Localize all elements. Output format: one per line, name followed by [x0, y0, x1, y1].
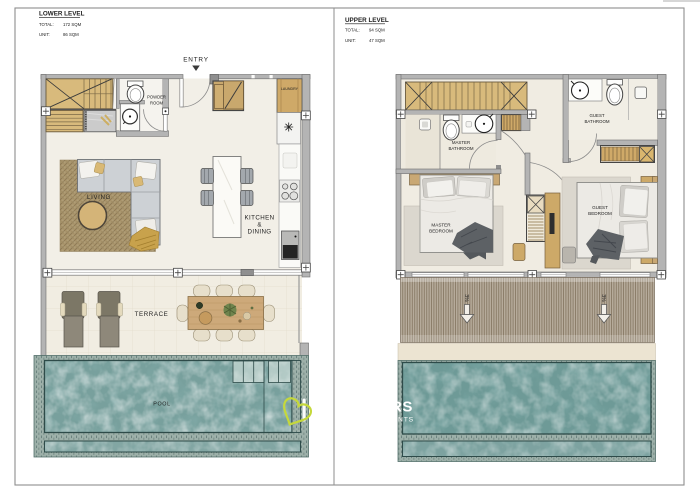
svg-text:LOWER LEVEL: LOWER LEVEL — [39, 10, 85, 17]
svg-text:TOTAL:: TOTAL: — [39, 22, 54, 27]
svg-text:LAUNDRY: LAUNDRY — [281, 87, 299, 91]
svg-text:BATHROOM: BATHROOM — [448, 146, 473, 151]
svg-text:MASTER: MASTER — [452, 140, 470, 145]
svg-text:GUEST: GUEST — [592, 205, 608, 210]
svg-text:POWDER: POWDER — [147, 95, 166, 100]
svg-text:KITCHEN: KITCHEN — [245, 215, 275, 222]
svg-text:ROOM: ROOM — [150, 100, 164, 105]
svg-text:DINING: DINING — [247, 229, 271, 236]
svg-text:86 SQM: 86 SQM — [63, 32, 79, 37]
svg-text:UNIT:: UNIT: — [39, 32, 50, 37]
svg-text:3%: 3% — [600, 294, 606, 302]
svg-text:ENTRY: ENTRY — [183, 57, 209, 64]
svg-text:3%: 3% — [463, 294, 469, 302]
svg-text:NTS: NTS — [398, 417, 414, 424]
svg-text:TERRACE: TERRACE — [135, 311, 169, 318]
svg-text:172 SQM: 172 SQM — [63, 22, 82, 27]
svg-text:POOL: POOL — [153, 402, 170, 408]
svg-text:GUEST: GUEST — [589, 113, 604, 118]
svg-text:UPPER LEVEL: UPPER LEVEL — [345, 17, 389, 24]
svg-text:47 SQM: 47 SQM — [369, 38, 385, 43]
svg-text:94 SQM: 94 SQM — [369, 27, 385, 32]
svg-text:BATHROOM: BATHROOM — [584, 119, 609, 124]
svg-text:TOTAL:: TOTAL: — [345, 27, 360, 32]
svg-text:BEDROOM: BEDROOM — [588, 211, 612, 216]
svg-text:BEDROOM: BEDROOM — [429, 229, 453, 234]
svg-text:MASTER: MASTER — [431, 223, 451, 228]
svg-text:LIVING: LIVING — [87, 194, 111, 201]
svg-text:RS: RS — [391, 399, 413, 416]
svg-text:UNIT:: UNIT: — [345, 38, 356, 43]
